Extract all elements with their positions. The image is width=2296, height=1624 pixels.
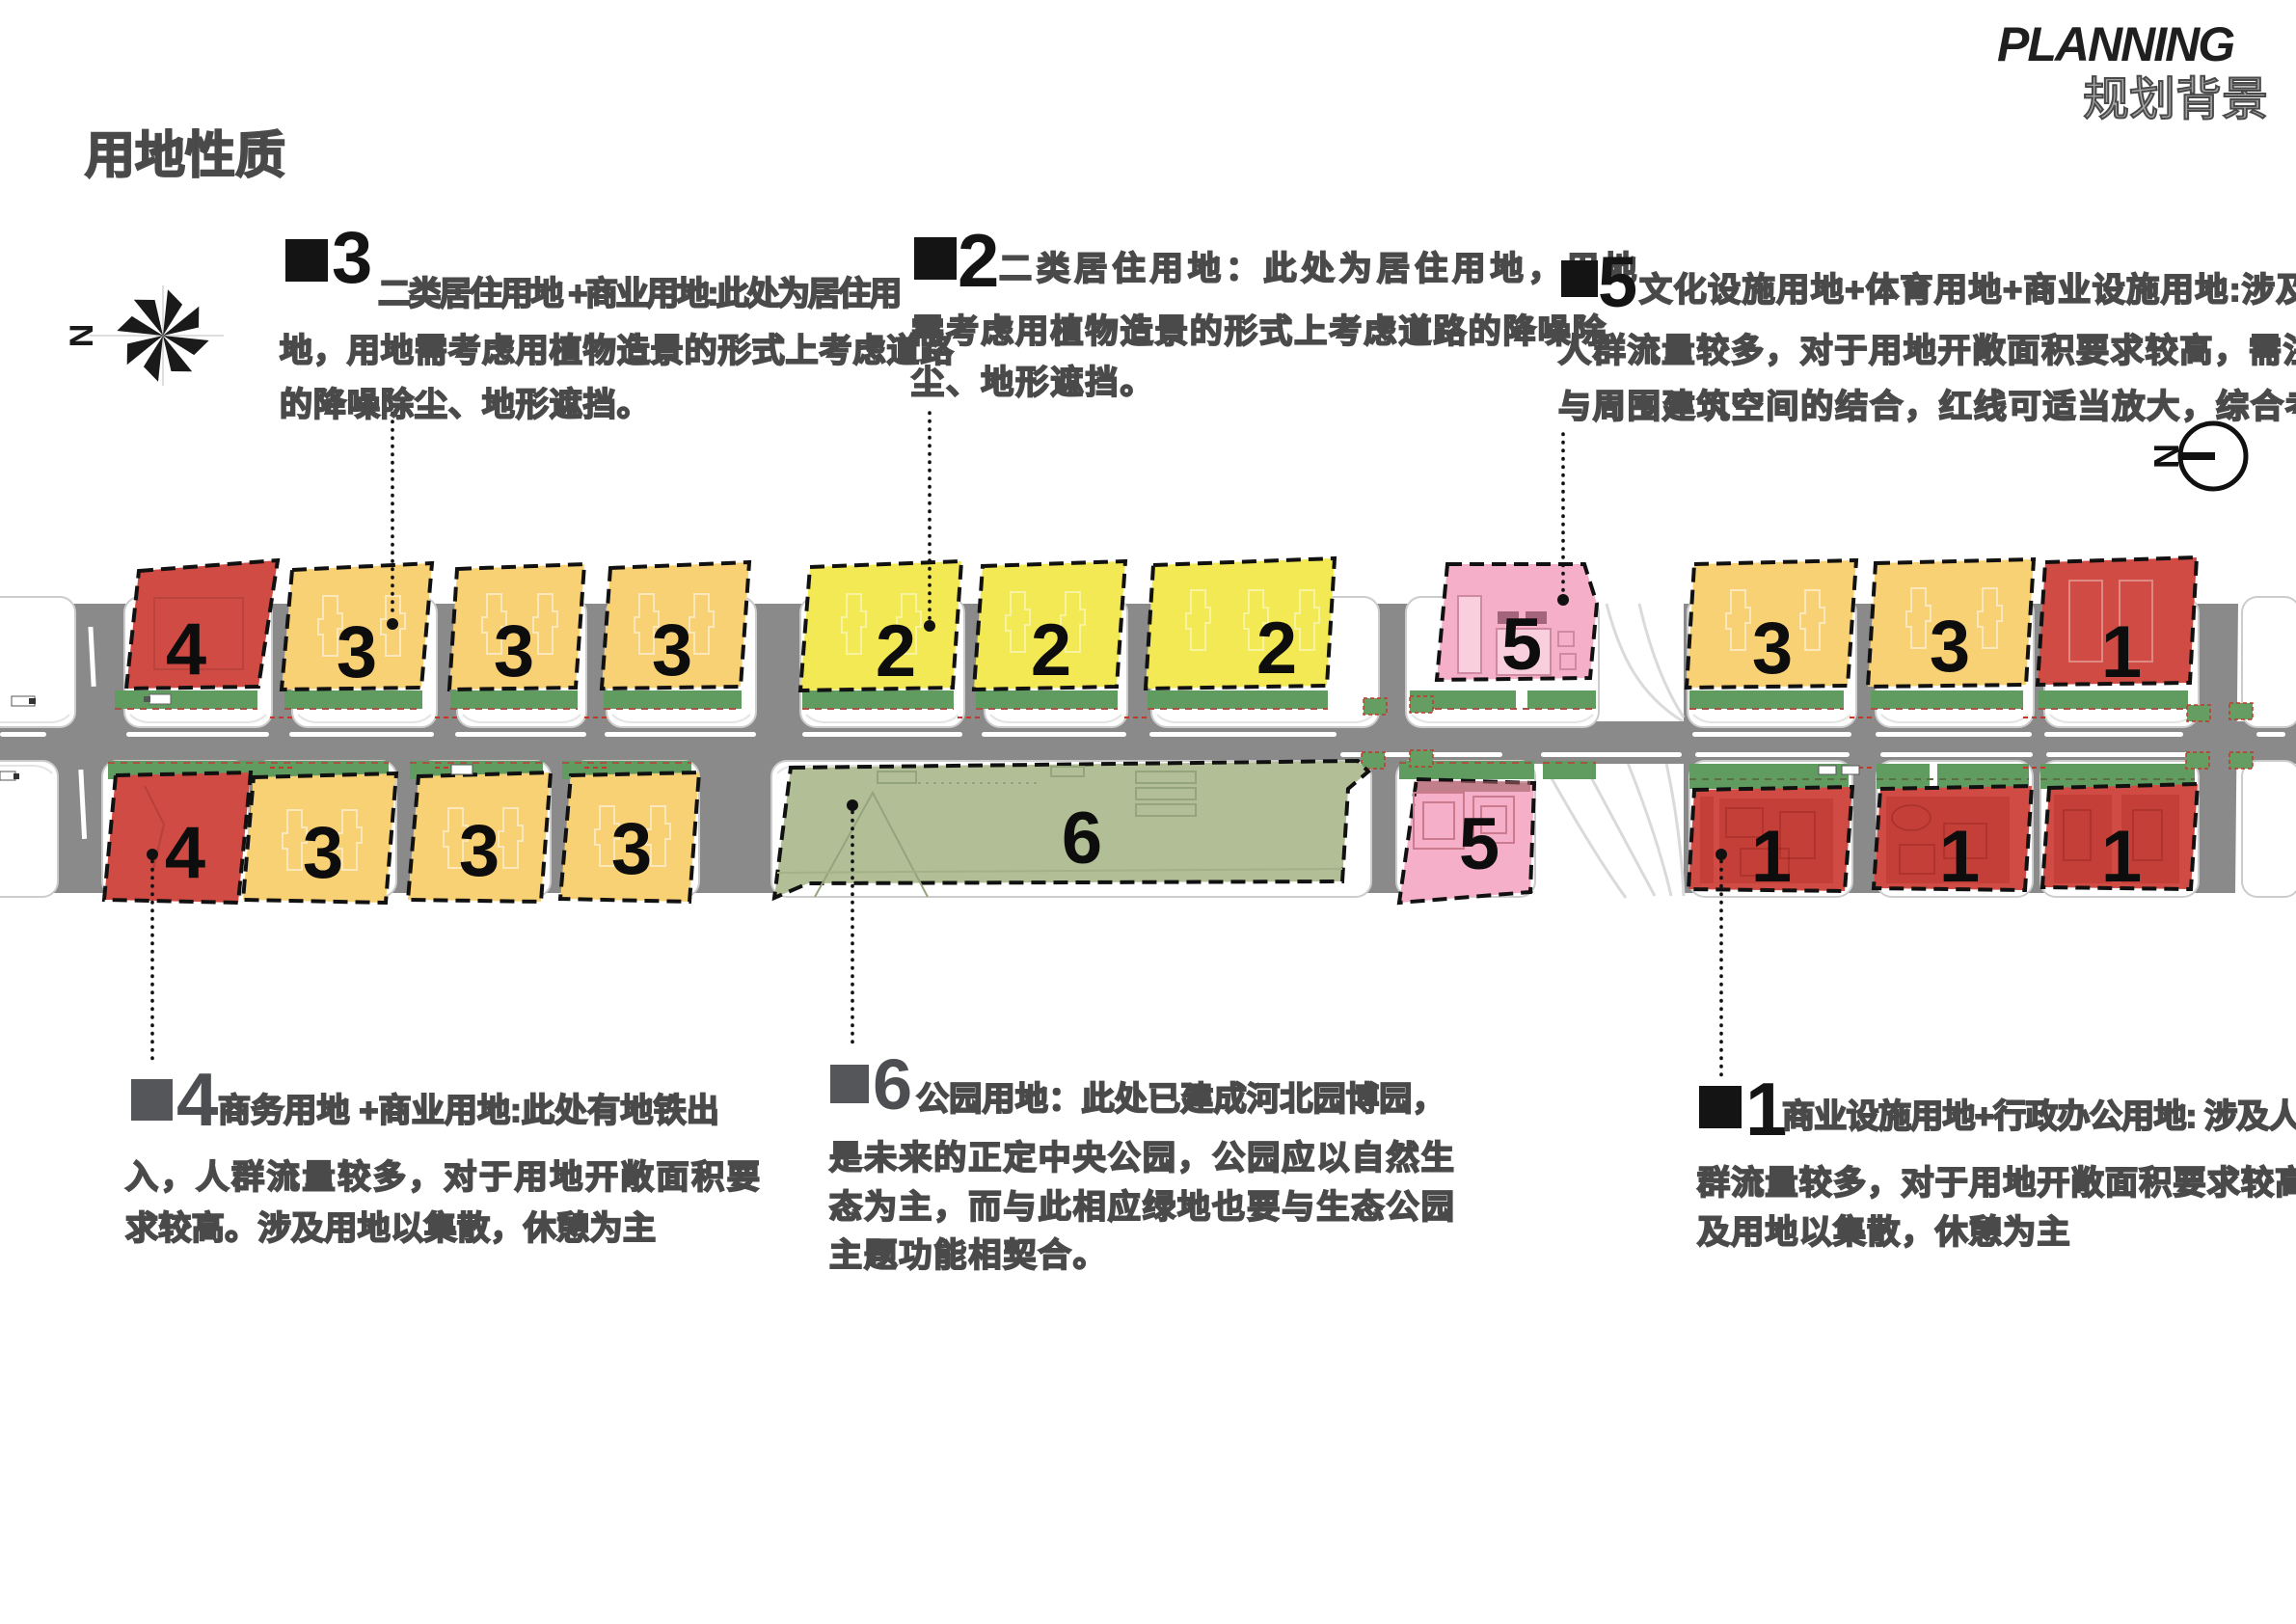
svg-text:6: 6 xyxy=(1062,798,1102,880)
svg-text:5: 5 xyxy=(1501,604,1542,686)
svg-text:1: 1 xyxy=(1751,816,1792,898)
svg-text:N: N xyxy=(2147,444,2186,469)
svg-text:1: 1 xyxy=(1939,816,1980,898)
svg-text:3: 3 xyxy=(337,611,377,693)
svg-text:2: 2 xyxy=(1031,609,1071,691)
svg-text:3: 3 xyxy=(1930,606,1970,688)
svg-text:4: 4 xyxy=(166,609,206,690)
svg-text:1: 1 xyxy=(2101,611,2142,693)
svg-text:N: N xyxy=(64,324,100,348)
svg-text:3: 3 xyxy=(494,610,534,692)
svg-text:4: 4 xyxy=(165,812,205,894)
svg-text:3: 3 xyxy=(303,812,343,894)
svg-text:3: 3 xyxy=(1752,608,1793,690)
svg-text:3: 3 xyxy=(652,609,692,691)
svg-text:2: 2 xyxy=(1256,608,1297,690)
svg-text:1: 1 xyxy=(2101,816,2142,898)
svg-text:5: 5 xyxy=(1459,803,1499,885)
svg-text:3: 3 xyxy=(459,810,500,892)
svg-text:2: 2 xyxy=(876,610,916,692)
svg-text:3: 3 xyxy=(611,808,652,890)
